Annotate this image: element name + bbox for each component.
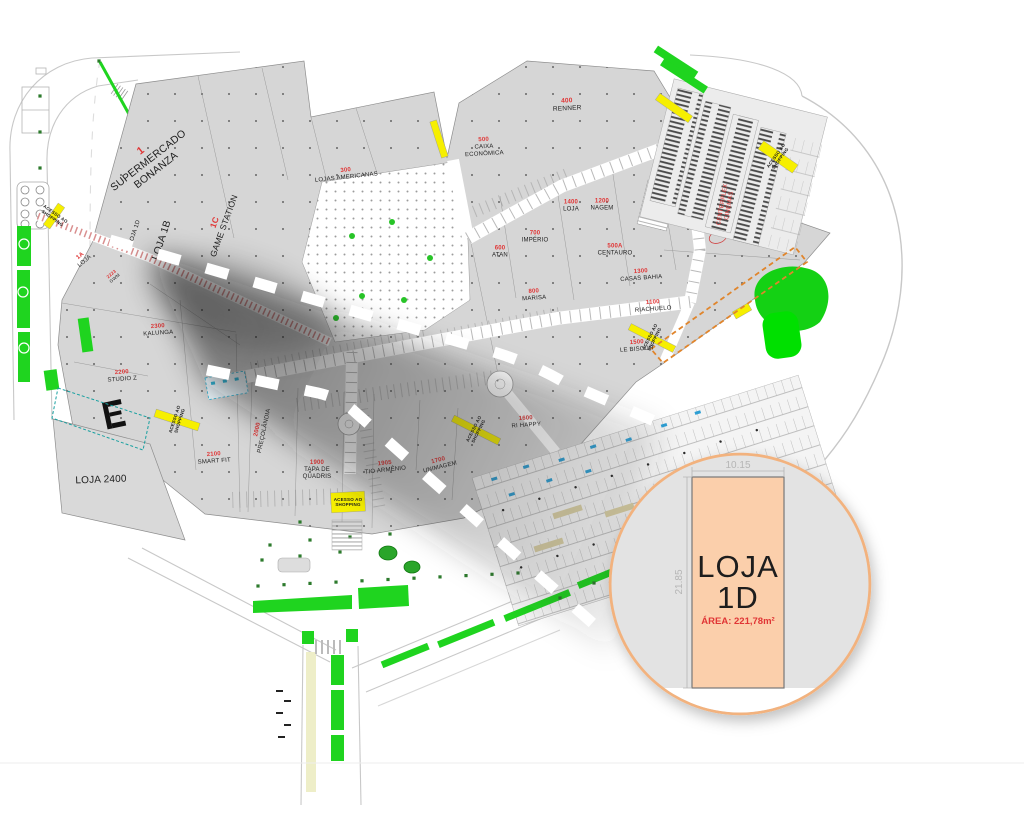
tree-dot [308,582,311,585]
tree-dot [38,166,41,169]
svg-text:300: 300 [340,167,352,174]
green-curb-nw [100,62,130,116]
tree-dot [308,538,311,541]
svg-text:500: 500 [478,137,489,144]
svg-text:2100: 2100 [207,451,222,458]
tree-dot [97,59,100,62]
svg-text:1200: 1200 [595,199,610,205]
svg-text:QUADRIS: QUADRIS [303,474,332,480]
svg-text:CAIXA: CAIXA [474,144,493,151]
tree-dot [298,520,301,523]
floor-plan-canvas: 1SUPERMERCADOBONANZALOJA 1DLOJA 1B1CGAME… [0,0,1024,819]
zoom-callout: 10.15 21.85 LOJA 1D ÁREA: 221,78m² [609,452,872,718]
callout-store-name-2: 1D [717,580,759,615]
svg-text:LOJA: LOJA [563,207,579,213]
svg-text:500A: 500A [607,244,623,250]
svg-text:1400: 1400 [564,200,579,206]
tree-dot [412,577,415,580]
callout-width-dim: 10.15 [725,460,750,471]
tree-dot [256,584,259,587]
callout-area: ÁREA: 221,78m² [701,616,774,627]
plaza-kiosk [278,558,310,572]
svg-text:2200: 2200 [115,369,130,376]
svg-text:NAGEM: NAGEM [590,206,613,212]
tree-dot [334,581,337,584]
tree-dot [38,130,41,133]
tree-dot [338,550,341,553]
svg-text:800: 800 [528,288,539,295]
svg-text:700: 700 [530,231,541,237]
svg-text:1300: 1300 [634,268,649,275]
tree-dot [298,554,301,557]
tree-dot [464,574,467,577]
road-bottom-vertical-a [301,645,303,805]
svg-text:1900: 1900 [310,460,325,466]
tree-dot [490,573,493,576]
site-plan-svg: 1SUPERMERCADOBONANZALOJA 1DLOJA 1B1CGAME… [0,0,1024,819]
label-acesso-ao-shopping: ACESSO AOSHOPPING [334,497,363,507]
svg-text:SHOPPING: SHOPPING [335,502,361,507]
tree-dot [388,532,391,535]
svg-text:ATAN: ATAN [492,253,508,259]
road-bottom-vertical-b [358,646,361,805]
road-bottom-right-c [378,630,560,706]
svg-text:TAPA DE: TAPA DE [304,467,330,473]
svg-text:ACESSO AO: ACESSO AO [334,497,363,502]
svg-text:600: 600 [495,246,506,252]
callout-store-name-1: LOJA [697,549,779,584]
svg-text:2300: 2300 [151,323,166,330]
svg-text:400: 400 [561,97,573,105]
plaza-stairs [332,520,362,550]
svg-text:RENNER: RENNER [553,104,582,112]
bus-stop-marks [276,690,291,738]
tree-dot [438,575,441,578]
svg-text:IMPÉRIO: IMPÉRIO [522,237,549,244]
tree-dot [268,543,271,546]
tree-dot [38,94,41,97]
tree-dot [282,583,285,586]
tree-dot [260,558,263,561]
tree-dot [386,578,389,581]
crosswalk-south [316,640,340,654]
svg-text:CENTAURO: CENTAURO [598,251,633,257]
svg-text:1100: 1100 [646,299,661,306]
label-loja-2400: LOJA 2400 [75,474,127,487]
plaza-green-blobs [379,546,420,573]
svg-text:LOJA 2400: LOJA 2400 [75,474,127,487]
callout-height-dim: 21.85 [674,569,685,594]
label-loja: 1400LOJA [563,200,579,213]
bus-lane [306,652,316,792]
tree-dot [360,579,363,582]
